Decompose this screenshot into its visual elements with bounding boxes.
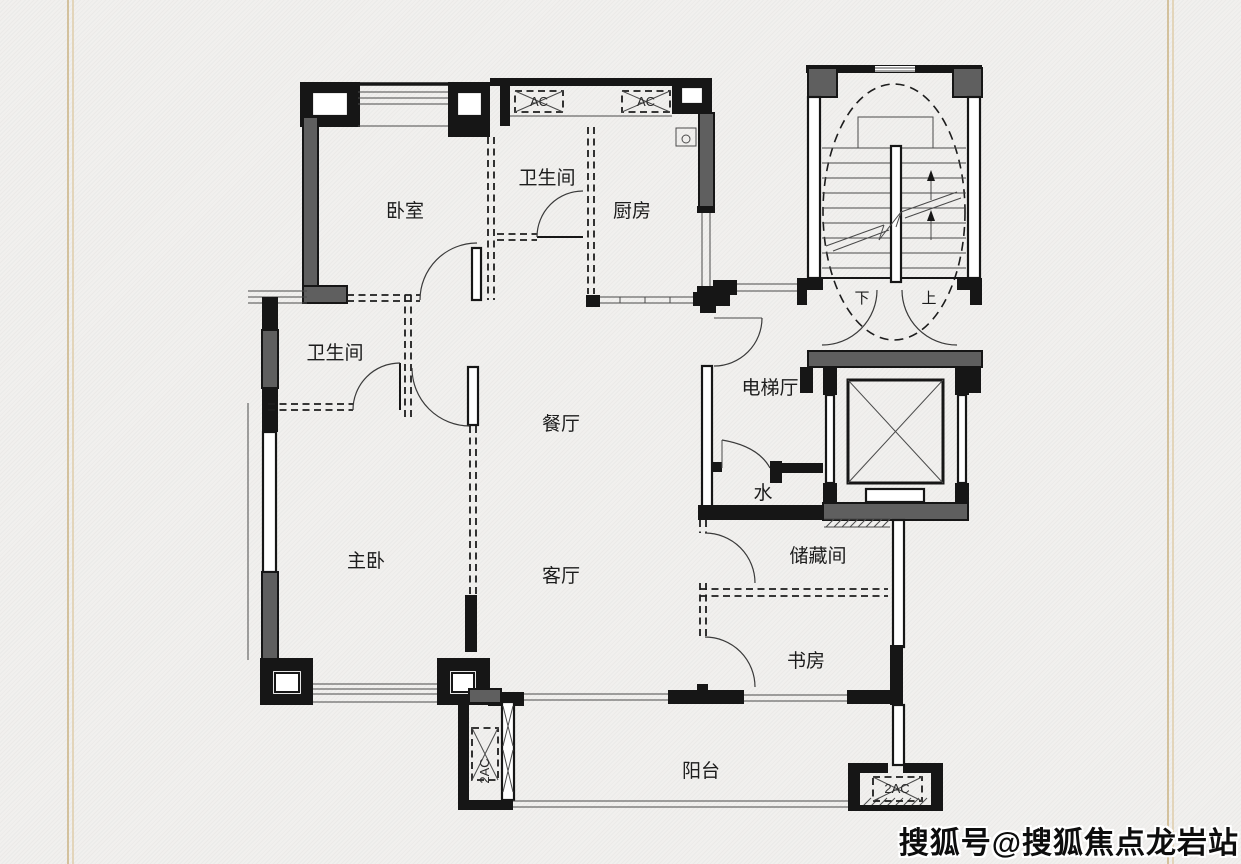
- floorplan-drawing: AC AC: [0, 0, 1241, 864]
- ac-label-balcony-right: 2AC: [884, 781, 909, 796]
- bottom-walls: [469, 689, 898, 706]
- left-exterior-walls: [248, 291, 490, 705]
- entry-corridor: [700, 280, 797, 366]
- room-label-bedroom: 卧室: [386, 200, 424, 222]
- room-label-elevator-hall: 电梯厅: [741, 377, 798, 399]
- room-label-study: 书房: [787, 650, 825, 672]
- watermark: 搜狐号@搜狐焦点龙岩站: [899, 818, 1239, 862]
- stair-down-label: 下: [854, 290, 869, 307]
- staircase: 下 上: [797, 65, 982, 345]
- room-label-living: 客厅: [542, 565, 580, 587]
- balcony-structure: 2AC 2AC: [458, 702, 943, 811]
- room-label-bathroom-top: 卫生间: [518, 167, 575, 189]
- top-partitions: [347, 127, 594, 301]
- room-label-dining: 餐厅: [542, 413, 580, 435]
- room-labels: 卧室 卫生间 厨房 卫生间 餐厅 电梯厅 水 主卧 客厅 储藏间 书房 阳台: [306, 167, 846, 782]
- ac-label-1: AC: [530, 94, 548, 109]
- ac-label-2: AC: [637, 94, 655, 109]
- room-label-water: 水: [753, 482, 772, 504]
- room-label-balcony: 阳台: [682, 760, 720, 782]
- page: AC AC: [0, 0, 1241, 864]
- room-label-kitchen: 厨房: [613, 200, 651, 222]
- elevator: [800, 351, 982, 527]
- stair-arrow-icon: [927, 170, 935, 240]
- master-partitions: [412, 367, 478, 652]
- room-label-bathroom-left: 卫生间: [306, 342, 363, 364]
- room-label-storage: 储藏间: [789, 545, 846, 567]
- stair-up-label: 上: [921, 290, 936, 307]
- top-ac-platforms: AC AC: [515, 91, 670, 112]
- room-label-master-bedroom: 主卧: [347, 550, 385, 572]
- ac-label-balcony-left: 2AC: [477, 758, 492, 783]
